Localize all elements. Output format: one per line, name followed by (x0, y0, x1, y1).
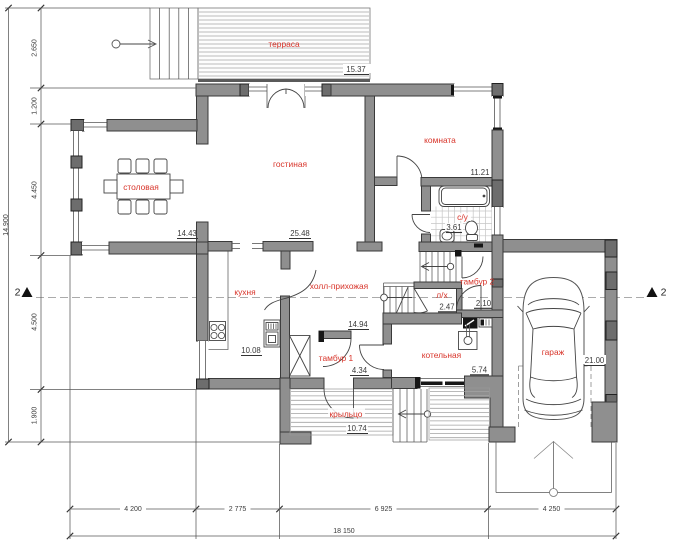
svg-text:4.500: 4.500 (32, 313, 39, 331)
svg-text:5.74: 5.74 (472, 366, 488, 375)
svg-text:1.900: 1.900 (32, 407, 39, 425)
svg-text:комната: комната (424, 135, 456, 145)
svg-text:кухня: кухня (234, 287, 255, 297)
svg-text:4 200: 4 200 (124, 506, 142, 513)
svg-text:2: 2 (15, 287, 21, 299)
svg-text:4 250: 4 250 (543, 506, 561, 513)
svg-text:2.10: 2.10 (476, 299, 492, 308)
svg-text:4.34: 4.34 (352, 366, 368, 375)
svg-text:10.08: 10.08 (241, 346, 261, 355)
svg-text:25.48: 25.48 (290, 229, 310, 238)
svg-text:холл-прихожая: холл-прихожая (310, 281, 368, 291)
svg-text:3.61: 3.61 (446, 223, 461, 232)
svg-text:15.37: 15.37 (346, 65, 366, 74)
svg-text:18 150: 18 150 (333, 528, 355, 535)
svg-text:л/х: л/х (436, 290, 448, 300)
svg-text:гараж: гараж (542, 347, 565, 357)
svg-text:10.74: 10.74 (347, 424, 367, 433)
svg-text:тамбур 1: тамбур 1 (319, 353, 354, 363)
svg-text:4.450: 4.450 (32, 181, 39, 199)
svg-text:2.650: 2.650 (32, 39, 39, 57)
svg-text:терраса: терраса (268, 39, 300, 49)
svg-text:столовая: столовая (123, 182, 159, 192)
svg-text:14.900: 14.900 (3, 214, 10, 236)
svg-text:11.21: 11.21 (471, 168, 490, 177)
svg-text:2.47: 2.47 (439, 303, 454, 312)
svg-text:14.43: 14.43 (177, 229, 197, 238)
svg-text:21.00: 21.00 (585, 356, 605, 365)
svg-text:14.94: 14.94 (348, 320, 368, 329)
svg-text:с/у: с/у (457, 212, 469, 222)
svg-text:2: 2 (661, 287, 667, 299)
svg-text:тамбур 2: тамбур 2 (460, 277, 495, 287)
svg-text:крыльцо: крыльцо (330, 409, 363, 419)
svg-text:2 775: 2 775 (229, 506, 247, 513)
svg-text:6 925: 6 925 (375, 506, 393, 513)
svg-text:1.200: 1.200 (32, 97, 39, 115)
svg-text:гостиная: гостиная (273, 159, 307, 169)
svg-text:котельная: котельная (422, 350, 461, 360)
